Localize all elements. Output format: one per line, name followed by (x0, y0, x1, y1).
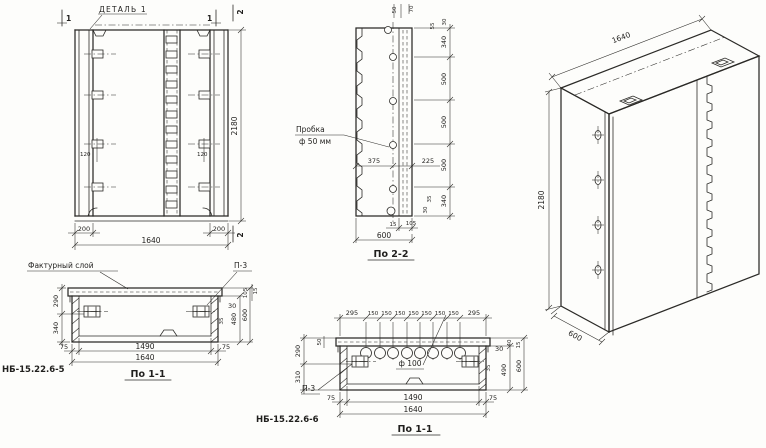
dim-label: 490 (500, 364, 508, 376)
panel-code: НБ-15.22.6-6 (256, 415, 319, 425)
dim-label: 105 (406, 221, 417, 227)
dim-label: 150 (368, 311, 379, 317)
anchor-marks (84, 50, 220, 191)
key-strip-teeth (166, 36, 177, 208)
dim-label: 295 (346, 309, 358, 317)
dim-label: 75 (60, 343, 68, 351)
dim-label: 500 (440, 159, 448, 171)
dim-label: 2180 (230, 116, 239, 135)
dim-label: 340 (52, 322, 60, 334)
dim-label: 200 (213, 225, 225, 233)
dim-label: 30 (423, 206, 429, 213)
dim-label: 15 (253, 287, 259, 294)
dim-label: 150 (381, 311, 392, 317)
dim-label: 75 (222, 343, 230, 351)
dim-label: 290 (294, 345, 302, 357)
view-title: По 1-1 (131, 369, 166, 380)
dim-label: 600 (377, 231, 392, 240)
dim-label: 75 (327, 394, 335, 402)
dim-label: 480 (230, 313, 238, 325)
isometric-view: 1640 2180 600 (537, 15, 759, 345)
dim-label: 75 (489, 394, 497, 402)
plug-label: Пробка (296, 125, 325, 134)
dim-label: 500 (440, 116, 448, 128)
dim-label: 375 (368, 157, 380, 165)
texture-layer-label: Фактурный слой (28, 261, 94, 270)
dim-label: 40 (507, 339, 513, 346)
view-title: По 2-2 (374, 249, 409, 260)
dim-label: 150 (395, 311, 406, 317)
hole-diameter-label: ф 100 (398, 359, 421, 368)
dim-label: 70 (409, 5, 415, 12)
dim-label: 55 (430, 22, 436, 29)
dim-label: 30 (228, 302, 236, 310)
dim-label: 295 (468, 309, 480, 317)
dim-label: 225 (422, 157, 434, 165)
dim-label: 120 (80, 152, 91, 158)
dim-label: 35 (219, 317, 225, 324)
detail-callout-label: ДЕТАЛЬ 1 (99, 5, 147, 14)
dim-label: 1640 (135, 353, 154, 362)
drawing-sheet: 120 120 200 200 1640 2180 1 1 2 2 ДЕТАЛЬ… (0, 0, 766, 448)
plan-view-b: 295 150 150 150 150 150 150 150 295 ф 10… (256, 309, 528, 435)
dim-label: 105 (243, 287, 249, 298)
anchor-ref-label: П-3 (234, 261, 247, 270)
dim-label: 35 (486, 364, 492, 371)
section-mark-2: 2 (236, 232, 245, 237)
dim-label: 35 (427, 195, 433, 202)
dim-label: 150 (435, 311, 446, 317)
dim-label: 290 (52, 295, 60, 307)
dim-label: 150 (408, 311, 419, 317)
section-2-2-view: Пробка ф 50 мм 50 70 375 225 340 500 500… (295, 4, 455, 260)
hole-row (361, 322, 466, 360)
dim-label: 1640 (611, 30, 632, 45)
dim-label: 50 (317, 338, 323, 345)
side-holes (592, 126, 604, 279)
dim-label: 15 (516, 341, 522, 348)
section-mark-1: 1 (207, 14, 212, 23)
dim-label: 1490 (135, 342, 154, 351)
section-mark-1: 1 (66, 14, 71, 23)
dim-label: 30 (442, 18, 448, 25)
front-view-elevation: 120 120 200 200 1640 2180 1 1 2 2 ДЕТАЛЬ… (57, 5, 246, 250)
dim-label: 2180 (537, 190, 546, 209)
plug-label: ф 50 мм (299, 137, 331, 146)
dim-label: 340 (440, 195, 448, 207)
view-title: По 1-1 (398, 424, 433, 435)
dim-label: 1640 (141, 236, 160, 245)
dim-label: 600 (515, 360, 523, 372)
dim-label: 150 (421, 311, 432, 317)
section-mark-2: 2 (236, 9, 245, 14)
dim-label: 120 (197, 152, 208, 158)
dim-label: 1490 (403, 393, 422, 402)
dim-label: 150 (448, 311, 459, 317)
panel-code: НБ-15.22.6-5 (2, 365, 65, 375)
panel-drawing: 120 120 200 200 1640 2180 1 1 2 2 ДЕТАЛЬ… (0, 0, 766, 448)
dim-label: 340 (440, 36, 448, 48)
dim-label: 600 (241, 309, 249, 321)
plan-view-a: Фактурный слой П-3 290 340 105 15 30 35 … (2, 261, 259, 380)
dim-label: 15 (390, 222, 397, 228)
dim-label: 500 (440, 73, 448, 85)
dim-label: 1640 (403, 405, 422, 414)
dim-label: 50 (392, 6, 398, 13)
dim-label: 310 (294, 371, 302, 383)
dim-label: 200 (78, 225, 90, 233)
